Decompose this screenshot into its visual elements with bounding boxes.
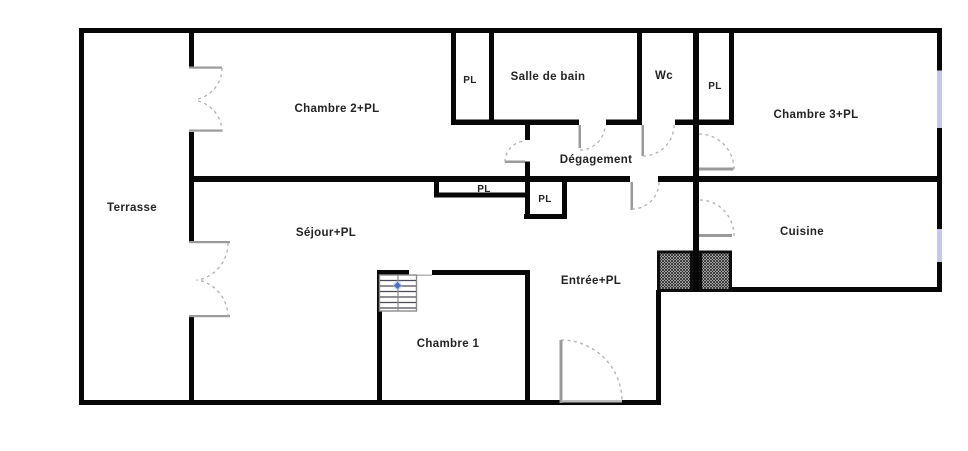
svg-text:Cuisine: Cuisine <box>780 226 824 238</box>
svg-text:Chambre 3+PL: Chambre 3+PL <box>773 109 858 121</box>
svg-text:PL: PL <box>708 81 721 92</box>
svg-text:Salle de bain: Salle de bain <box>511 71 586 83</box>
svg-text:Séjour+PL: Séjour+PL <box>296 227 356 239</box>
svg-text:Terrasse: Terrasse <box>107 202 157 214</box>
svg-text:PL: PL <box>538 194 551 205</box>
svg-text:PL: PL <box>463 75 476 86</box>
svg-text:Wc: Wc <box>655 70 673 82</box>
svg-text:Chambre 2+PL: Chambre 2+PL <box>294 103 379 115</box>
svg-text:Dégagement: Dégagement <box>560 154 633 166</box>
svg-text:Entrée+PL: Entrée+PL <box>561 275 621 287</box>
svg-text:PL: PL <box>477 184 490 195</box>
svg-text:Chambre 1: Chambre 1 <box>417 338 480 350</box>
